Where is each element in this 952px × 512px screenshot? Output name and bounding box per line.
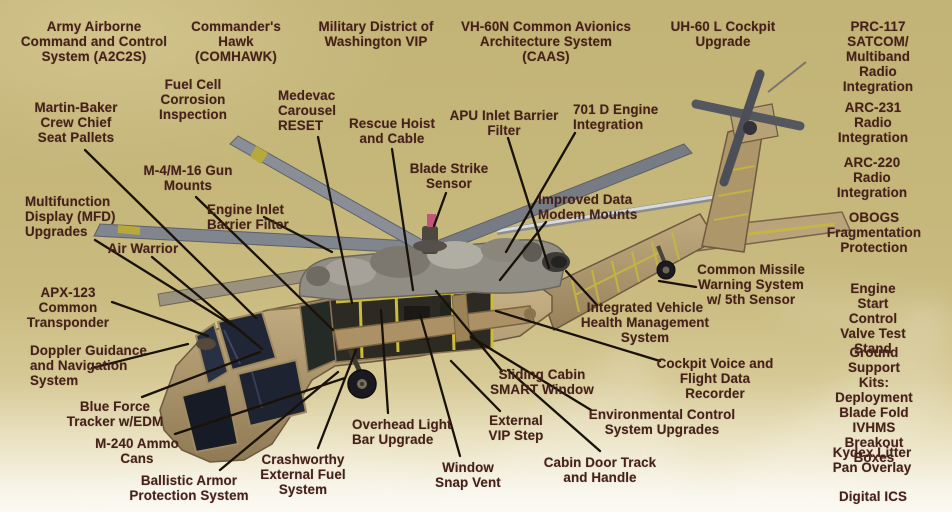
label-cabin-door: Cabin Door Track and Handle [544, 455, 656, 485]
label-improved-data: Improved Data Modem Mounts [538, 192, 637, 222]
label-prc117: PRC-117 SATCOM/ Multiband Radio Integrat… [841, 19, 915, 94]
label-ivhms-system: Integrated Vehicle Health Management Sys… [581, 300, 709, 345]
label-ballistic: Ballistic Armor Protection System [129, 473, 248, 503]
label-m240: M-240 Ammo Cans [95, 436, 179, 466]
label-fuel-cell: Fuel Cell Corrosion Inspection [159, 77, 227, 122]
label-obogs: OBOGS Fragmentation Protection [827, 210, 921, 255]
label-cvfdr: Cockpit Voice and Flight Data Recorder [657, 356, 774, 401]
label-cmws: Common Missile Warning System w/ 5th Sen… [697, 262, 805, 307]
label-uh60l-cockpit: UH-60 L Cockpit Upgrade [671, 19, 776, 49]
label-blade-strike: Blade Strike Sensor [410, 161, 489, 191]
label-kydex: Kydex Litter Pan Overlay [833, 445, 912, 475]
label-mfd: Multifunction Display (MFD) Upgrades [25, 194, 116, 239]
label-digital-ics: Digital ICS [839, 489, 907, 504]
label-vip-step: External VIP Step [489, 413, 544, 443]
label-arc220: ARC-220 Radio Integration [832, 155, 912, 200]
label-medevac: Medevac Carousel RESET [278, 88, 336, 133]
label-caas: VH-60N Common Avionics Architecture Syst… [461, 19, 631, 64]
slide: Army Airborne Command and Control System… [0, 0, 952, 512]
callout-labels: Army Airborne Command and Control System… [0, 0, 952, 512]
label-engine-inlet: Engine Inlet Barrier Filter [207, 202, 289, 232]
label-martin-baker: Martin-Baker Crew Chief Seat Pallets [34, 100, 117, 145]
label-blue-force: Blue Force Tracker w/EDM [67, 399, 164, 429]
label-a2c2s: Army Airborne Command and Control System… [21, 19, 167, 64]
label-env-control: Environmental Control System Upgrades [589, 407, 735, 437]
label-mdw-vip: Military District of Washington VIP [318, 19, 433, 49]
label-air-warrior: Air Warrior [108, 241, 179, 256]
label-701d-engine: 701 D Engine Integration [573, 102, 658, 132]
label-sliding-cabin: Sliding Cabin SMART Window [490, 367, 594, 397]
label-rescue-hoist: Rescue Hoist and Cable [349, 116, 435, 146]
label-m4-m16: M-4/M-16 Gun Mounts [144, 163, 233, 193]
label-apx123: APX-123 Common Transponder [27, 285, 109, 330]
label-crashworthy: Crashworthy External Fuel System [260, 452, 345, 497]
label-apu-filter: APU Inlet Barrier Filter [450, 108, 559, 138]
label-window-snap: Window Snap Vent [435, 460, 501, 490]
label-comhawk: Commander's Hawk (COMHAWK) [191, 19, 281, 64]
label-overhead-light: Overhead Light Bar Upgrade [352, 417, 452, 447]
label-arc231: ARC-231 Radio Integration [834, 100, 913, 145]
label-doppler: Doppler Guidance and Navigation System [30, 343, 147, 388]
